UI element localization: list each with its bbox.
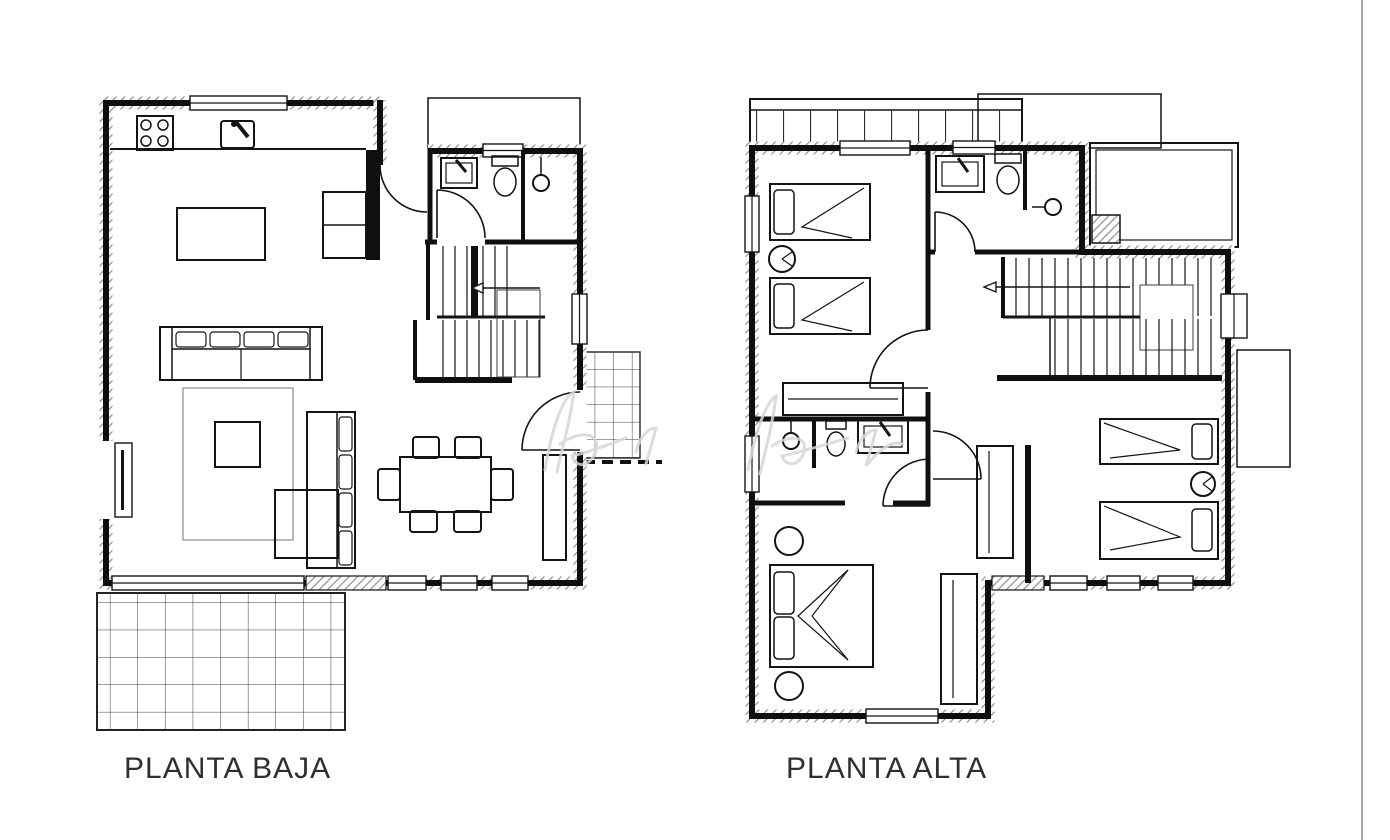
balcony-railing bbox=[750, 99, 1022, 143]
rug bbox=[183, 388, 293, 540]
bedroom-double bbox=[770, 527, 977, 704]
terrace-tile-grid bbox=[97, 593, 345, 730]
dining-table bbox=[400, 457, 491, 512]
entrance-door bbox=[522, 390, 587, 452]
bathroom bbox=[936, 154, 1061, 215]
kitchen-door-arc bbox=[380, 165, 427, 212]
dining-area bbox=[378, 437, 566, 560]
interior-walls bbox=[752, 148, 1222, 583]
floor-plan-planta-alta bbox=[745, 94, 1290, 723]
bedroom2-door-arc bbox=[933, 431, 981, 479]
stove-icon bbox=[137, 116, 173, 150]
floor-plans-drawing bbox=[0, 0, 1390, 840]
floor-plan-planta-baja bbox=[97, 96, 662, 730]
roof-terrace-outline bbox=[1090, 143, 1238, 247]
dining-chair bbox=[378, 469, 400, 500]
stairs-direction-arrow-icon bbox=[472, 283, 540, 293]
plan-label-planta-baja: PLANTA BAJA bbox=[124, 752, 331, 786]
round-nightstand-icon bbox=[1191, 472, 1215, 496]
bathroom-door-arc bbox=[437, 190, 485, 238]
dining-chair bbox=[455, 437, 481, 458]
roof-outline bbox=[1237, 350, 1290, 467]
wardrobe-icon bbox=[977, 446, 1013, 558]
plan-label-planta-alta: PLANTA ALTA bbox=[786, 752, 987, 786]
bedroom-twin-right bbox=[977, 419, 1218, 559]
toilet-icon bbox=[995, 154, 1021, 194]
washbasin-icon bbox=[441, 158, 477, 188]
kitchen-cabinets bbox=[323, 192, 366, 258]
toilet-icon bbox=[492, 156, 518, 196]
staircase bbox=[984, 258, 1211, 378]
kitchen-sink-icon bbox=[221, 121, 254, 148]
single-bed-icon bbox=[1100, 502, 1218, 559]
sofa-3-seat-icon bbox=[160, 327, 322, 380]
drawing-sheet: PLANTA BAJA PLANTA ALTA bbox=[0, 0, 1390, 840]
round-nightstand-icon bbox=[775, 527, 803, 555]
dining-chair bbox=[413, 437, 439, 458]
shower-icon bbox=[533, 157, 549, 191]
roof-outline bbox=[428, 98, 580, 148]
round-nightstand-icon bbox=[769, 246, 795, 272]
bedroom3-door-arc bbox=[883, 459, 930, 506]
exterior-walls bbox=[106, 100, 580, 583]
round-nightstand-icon bbox=[775, 672, 803, 700]
dining-chair bbox=[454, 511, 481, 532]
single-bed-icon bbox=[1100, 419, 1218, 464]
bathroom-door-arc bbox=[935, 212, 975, 252]
shower-icon bbox=[1032, 199, 1061, 215]
single-bed-icon bbox=[770, 278, 870, 334]
sideboard bbox=[543, 455, 566, 560]
staircase bbox=[437, 246, 545, 377]
kitchen-island bbox=[177, 208, 265, 260]
shower-icon bbox=[783, 421, 799, 449]
bathroom bbox=[437, 156, 549, 238]
stairs-direction-arrow-icon bbox=[984, 282, 1130, 292]
bedroom1-door-arc bbox=[870, 330, 928, 388]
dining-chair bbox=[491, 469, 513, 500]
single-bed-icon bbox=[770, 184, 870, 240]
double-bed-icon bbox=[770, 565, 873, 667]
tv-table bbox=[215, 422, 260, 467]
wardrobe-icon bbox=[941, 574, 977, 704]
bedroom-twin-left bbox=[769, 184, 903, 415]
living-room bbox=[160, 327, 355, 568]
washbasin-icon bbox=[936, 156, 984, 192]
dining-chair bbox=[410, 511, 437, 532]
